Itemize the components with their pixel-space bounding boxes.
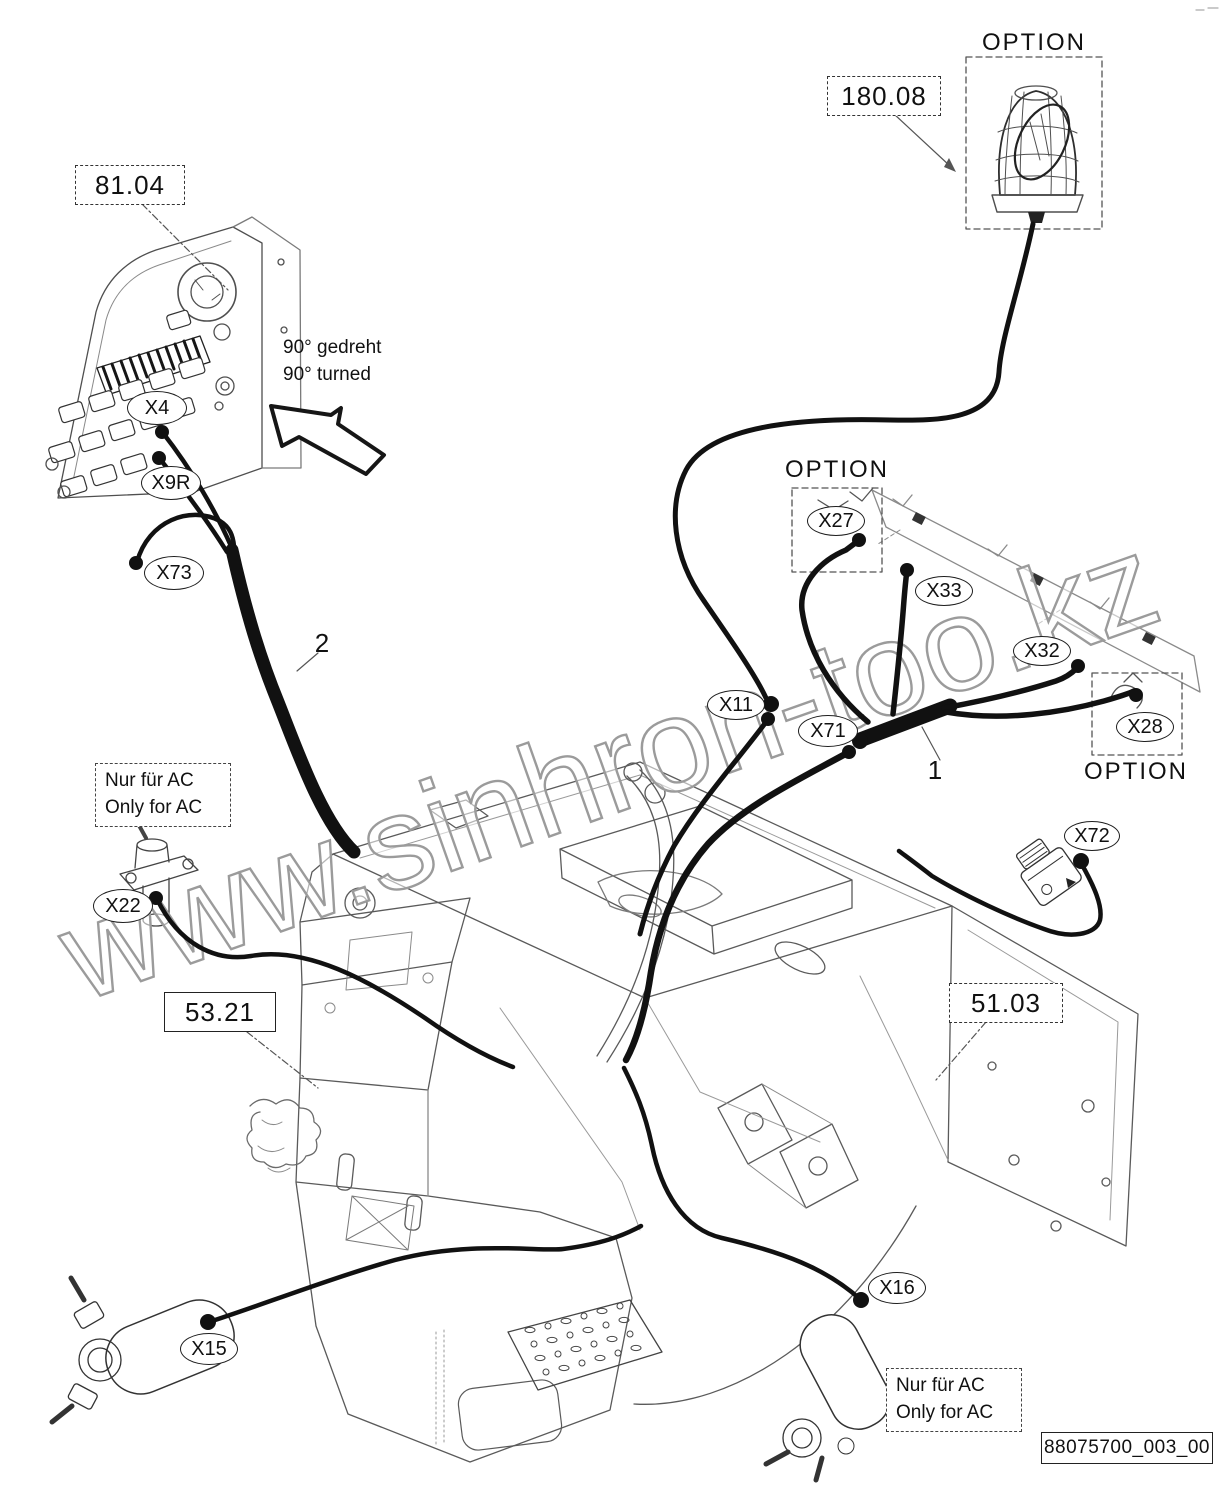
ac-note-right: Nur für AC Only for AC <box>886 1368 1022 1432</box>
part-ref-frame: 51.03 <box>949 983 1063 1023</box>
connector-label-x11: X11 <box>707 690 765 720</box>
connector-label-x71: X71 <box>798 715 858 747</box>
part-ref-console: 81.04 <box>75 165 185 205</box>
ac-note-left-line1: Nur für AC <box>105 768 194 795</box>
ac-note-left: Nur für AC Only for AC <box>95 763 231 827</box>
ac-note-right-line1: Nur für AC <box>896 1373 985 1400</box>
connector-label-x16: X16 <box>868 1272 926 1304</box>
option-label-roof-left: OPTION <box>777 457 897 483</box>
connector-label-x4: X4 <box>127 391 187 425</box>
parts-diagram-page: www.sinhron-too.kz 81.04 180.08 53. <box>0 0 1224 1494</box>
x16-pump-drawing <box>766 1305 900 1480</box>
connector-label-x15: X15 <box>180 1333 238 1365</box>
rotation-note-line2: 90° turned <box>283 362 371 389</box>
callout-number-2: 2 <box>312 628 332 658</box>
connector-label-x32: X32 <box>1013 636 1071 666</box>
ac-note-left-line2: Only for AC <box>105 795 202 822</box>
connector-label-x72: X72 <box>1064 821 1120 851</box>
diagram-line-art: www.sinhron-too.kz <box>0 0 1224 1494</box>
option-label-beacon: OPTION <box>974 30 1094 56</box>
connector-label-x33: X33 <box>915 576 973 606</box>
beacon-drawing <box>966 57 1102 229</box>
connector-label-x22: X22 <box>93 889 153 923</box>
connector-label-x27: X27 <box>807 506 865 536</box>
console-panel-drawing <box>46 217 301 498</box>
part-ref-cab: 53.21 <box>164 992 276 1032</box>
connector-label-x9r: X9R <box>141 466 201 500</box>
callout-number-1: 1 <box>925 755 945 785</box>
rotation-note-line1: 90° gedreht <box>283 335 381 362</box>
option-label-roof-right: OPTION <box>1076 759 1196 785</box>
connector-label-x73: X73 <box>144 556 204 590</box>
drawing-number: 88075700_003_00 <box>1041 1432 1213 1464</box>
part-ref-beacon: 180.08 <box>827 76 941 116</box>
rotation-note: 90° gedreht 90° turned <box>283 338 413 386</box>
ac-note-right-line2: Only for AC <box>896 1400 993 1427</box>
rotation-arrow <box>271 406 384 474</box>
connector-label-x28: X28 <box>1116 712 1174 742</box>
